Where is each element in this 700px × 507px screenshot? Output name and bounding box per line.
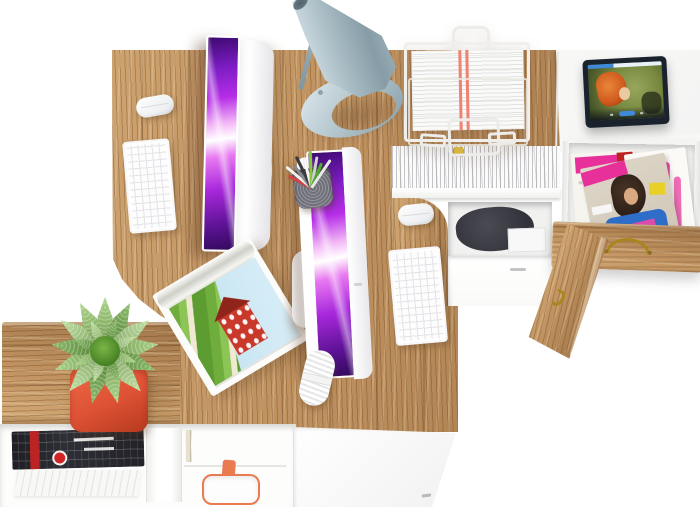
- magazine-title-dash: [74, 437, 114, 442]
- drawer-handle-screw-r: [648, 251, 652, 255]
- door-edge-highlight: [570, 237, 606, 356]
- keyboard-left[interactable]: [122, 138, 177, 234]
- drawer-corner-dash: [422, 493, 431, 497]
- workspace-photo: [0, 0, 700, 507]
- bottom-shelf: [0, 424, 296, 507]
- door-handle[interactable]: [550, 289, 567, 309]
- monitor-left: [200, 35, 277, 254]
- tablet-screen[interactable]: [588, 61, 665, 121]
- small-white-box: [508, 227, 547, 252]
- pens: [278, 134, 346, 192]
- plant-center: [90, 336, 120, 366]
- magazine-red-spine: [30, 431, 40, 469]
- cover-white-tag: [591, 204, 612, 216]
- book-row-item: [186, 430, 191, 462]
- storage-handle[interactable]: [510, 268, 526, 271]
- storage-compartment: [448, 202, 552, 256]
- magazine-red-logo: [52, 450, 67, 465]
- storage-shelf-lip: [392, 188, 560, 198]
- monitor-left-screen: [202, 35, 241, 252]
- paper-tray: [402, 26, 534, 150]
- control-dot-l[interactable]: [610, 114, 613, 116]
- character-face: [619, 87, 631, 101]
- cable-band: [301, 371, 332, 386]
- bottom-drawer-unit[interactable]: [294, 424, 464, 507]
- succulent-plant: [44, 288, 166, 414]
- tray-foot-right: [488, 131, 517, 145]
- keyboard-right[interactable]: [388, 246, 448, 346]
- shelf-divider: [146, 428, 182, 502]
- play-button[interactable]: [619, 111, 635, 117]
- cover-yellow-tag: [649, 183, 665, 195]
- video-progress-bar[interactable]: [588, 61, 662, 69]
- shopping-bag: [202, 474, 260, 505]
- chin-logo-dash: [354, 283, 362, 286]
- paper-fan: [14, 470, 142, 496]
- tray-foot-left: [420, 133, 447, 148]
- magazine-stack: [12, 428, 145, 469]
- drawer-handle[interactable]: [606, 237, 651, 255]
- tablet[interactable]: [582, 56, 669, 128]
- magazine-title-dash2: [84, 447, 114, 451]
- control-dot-r[interactable]: [640, 112, 643, 114]
